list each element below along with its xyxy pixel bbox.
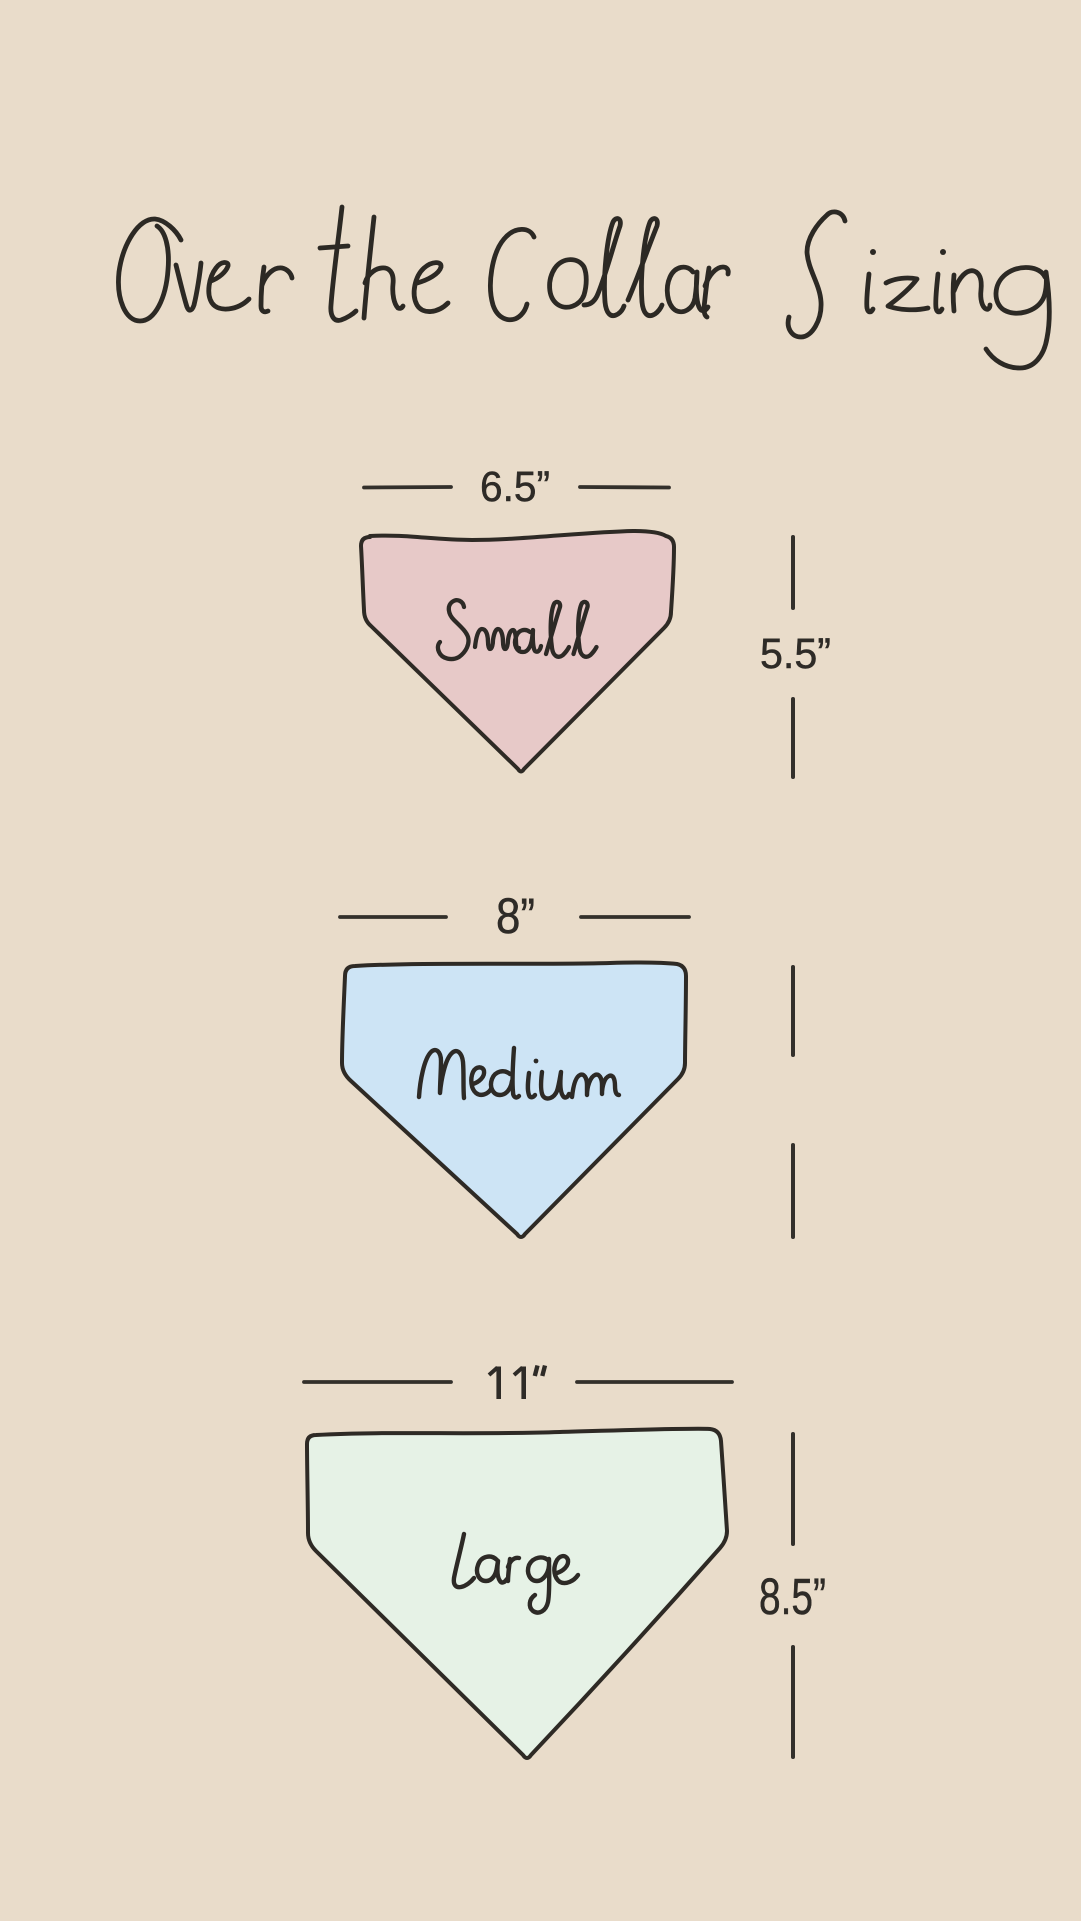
svg-text:6.5”: 6.5” [480,463,550,511]
svg-text:5.5”: 5.5” [760,630,831,678]
svg-text:8”: 8” [496,888,535,944]
svg-text:8.5”: 8.5” [759,1568,826,1625]
